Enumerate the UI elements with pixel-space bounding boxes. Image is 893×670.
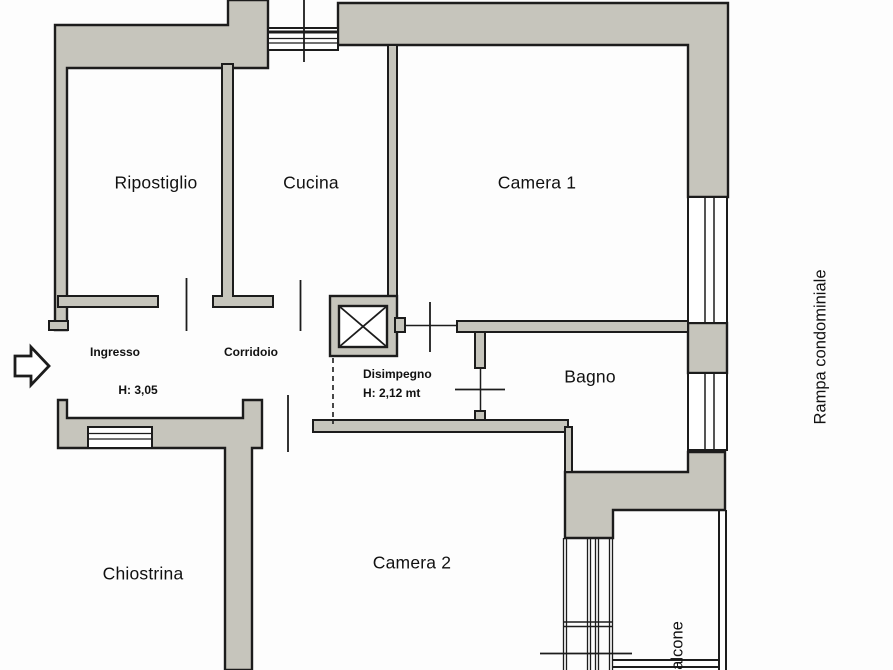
wall-divider-ripostiglio-cucina bbox=[213, 64, 273, 307]
wall-left-endcap bbox=[49, 321, 68, 330]
room-label-ingresso: Ingresso bbox=[90, 345, 140, 359]
window-camera1 bbox=[688, 197, 727, 323]
height-note-disimpegno: H: 2,12 mt bbox=[363, 386, 420, 400]
label-rampa-condominiale: Rampa condominiale bbox=[812, 269, 831, 424]
wall-bagno-lower-left bbox=[565, 427, 572, 472]
entrance-arrow-icon bbox=[15, 347, 49, 385]
room-label-camera2: Camera 2 bbox=[373, 553, 451, 574]
wall-divider-cucina-camera1 bbox=[388, 45, 397, 297]
room-label-camera1: Camera 1 bbox=[498, 173, 576, 194]
room-label-corridoio: Corridoio bbox=[224, 345, 278, 359]
room-label-cucina: Cucina bbox=[283, 173, 339, 194]
wall-corridor-left bbox=[58, 296, 158, 307]
room-label-balcone: Balcone bbox=[669, 621, 688, 670]
room-label-chiostrina: Chiostrina bbox=[103, 564, 184, 585]
height-note-ingresso: H: 3,05 bbox=[118, 383, 157, 397]
elevator-icon bbox=[330, 296, 405, 356]
wall-top-left bbox=[55, 0, 268, 330]
window-chiostrina bbox=[88, 427, 152, 448]
wall-bagno-left-stub-top bbox=[475, 332, 485, 368]
wall-bagno-bottom bbox=[565, 452, 725, 538]
room-label-disimpegno: Disimpegno bbox=[363, 367, 432, 381]
room-label-bagno: Bagno bbox=[564, 367, 616, 388]
window-bagno bbox=[688, 373, 727, 450]
interior-walls bbox=[58, 45, 688, 472]
room-label-ripostiglio: Ripostiglio bbox=[115, 173, 198, 194]
wall-camera2-top bbox=[313, 420, 568, 432]
wall-right-mid bbox=[688, 323, 727, 373]
wall-bagno-top bbox=[457, 321, 688, 332]
floor-plan-canvas: Ripostiglio Cucina Camera 1 Ingresso H: … bbox=[0, 0, 893, 670]
